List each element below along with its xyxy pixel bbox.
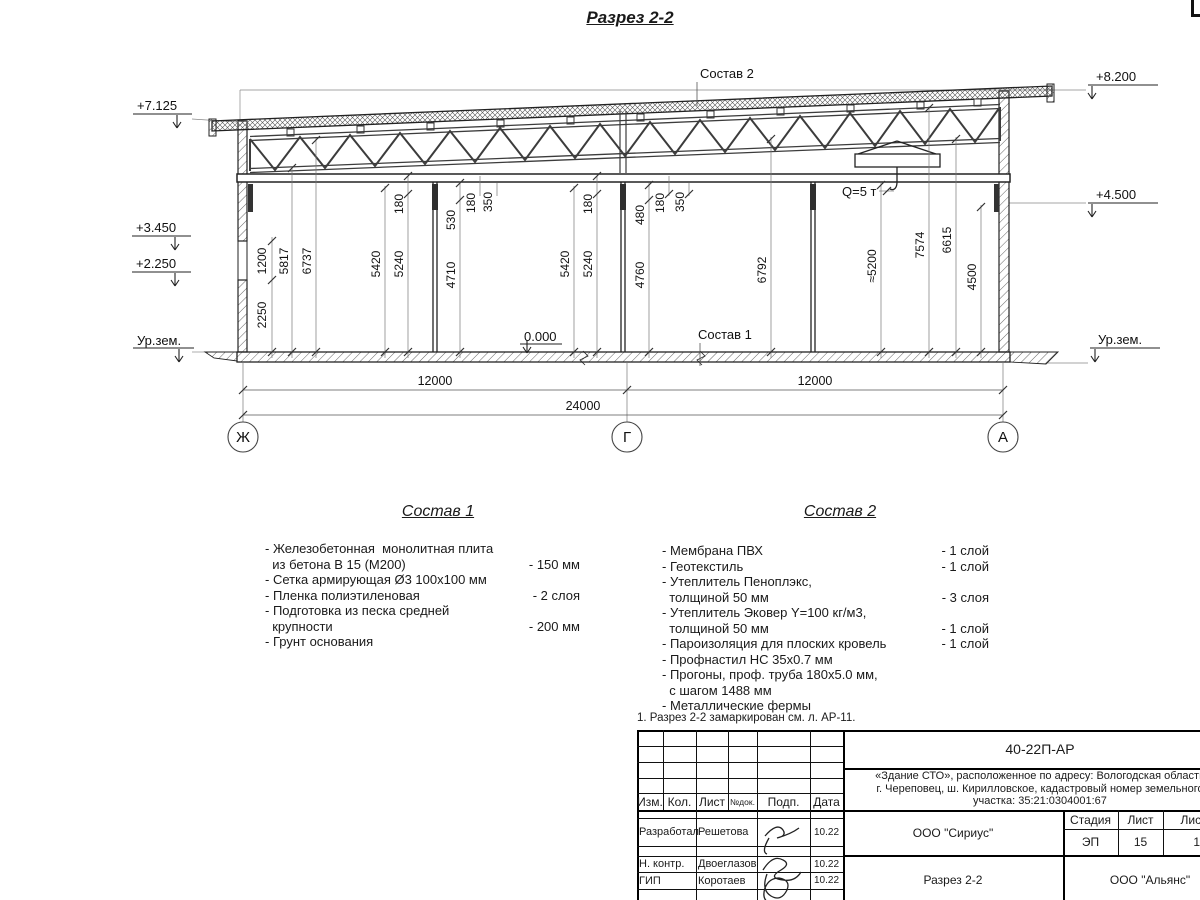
svg-text:4760: 4760: [633, 261, 647, 288]
svg-text:+8.200: +8.200: [1096, 69, 1136, 84]
svg-text:+7.125: +7.125: [137, 98, 177, 113]
svg-text:1200: 1200: [255, 247, 269, 274]
col-data: Дата: [810, 793, 843, 810]
col-kol: Кол.: [663, 793, 696, 810]
svg-text:Ур.зем.: Ур.зем.: [1098, 332, 1142, 347]
svg-text:180: 180: [581, 194, 595, 214]
svg-text:5240: 5240: [581, 250, 595, 277]
sheets-label: Листов: [1163, 810, 1200, 829]
svg-text:180: 180: [653, 193, 667, 213]
svg-text:6615: 6615: [940, 226, 954, 253]
col-ndok: №док.: [728, 793, 757, 810]
sostav2-title: Состав 2: [780, 503, 900, 521]
dimension-texts: 2250 1200 5817 6737 5420 5240 180 530 47…: [255, 192, 979, 329]
svg-text:350: 350: [481, 192, 495, 212]
svg-text:≈5200: ≈5200: [865, 249, 879, 283]
list-item: - Профнастил НС 35х0.7 мм: [662, 652, 989, 668]
signature-strokes: [755, 812, 813, 900]
list-item: - Грунт основания: [265, 634, 580, 650]
col-izm: Изм.: [637, 793, 663, 810]
svg-text:+2.250: +2.250: [136, 256, 176, 271]
reference-lines: [192, 90, 1088, 363]
project-description: «Здание СТО», расположенное по адресу: В…: [847, 768, 1200, 810]
sheet-note: 1. Разрез 2-2 замаркирован см. л. АР-11.: [637, 712, 855, 724]
signer-date: 10.22: [810, 872, 843, 889]
signer-name: Двоеглазов: [698, 856, 757, 872]
signer-date: 10.22: [810, 818, 843, 846]
svg-text:2250: 2250: [255, 301, 269, 328]
svg-text:4710: 4710: [444, 261, 458, 288]
col-podp: Подп.: [757, 793, 810, 810]
crane-beam: [237, 174, 1010, 182]
svg-text:6792: 6792: [755, 256, 769, 283]
walls-group: [238, 91, 1009, 352]
axis-bubbles: Ж Г А: [228, 422, 1018, 452]
svg-text:6737: 6737: [300, 247, 314, 274]
axis-letter: Ж: [236, 429, 250, 446]
sheets-value: 16: [1163, 829, 1200, 855]
zero-level-label: 0.000: [524, 329, 557, 344]
list-item: - Пленка полиэтиленовая - 2 слоя: [265, 588, 580, 604]
svg-text:350: 350: [673, 192, 687, 212]
svg-text:180: 180: [464, 193, 478, 213]
svg-text:180: 180: [392, 194, 406, 214]
axis-letter: А: [998, 429, 1008, 446]
signer-name: Коротаев: [698, 872, 757, 889]
svg-text:5420: 5420: [369, 250, 383, 277]
org-alyans: ООО "Альянс": [1063, 855, 1200, 900]
sheet-label: Лист: [1118, 810, 1163, 829]
svg-text:12000: 12000: [798, 374, 833, 388]
list-item: - Мембрана ПВХ - 1 слой: [662, 543, 989, 559]
axis-dimensions: 12000 12000 24000: [239, 362, 1007, 422]
svg-text:12000: 12000: [418, 374, 453, 388]
doc-number: 40-22П-АР: [843, 730, 1200, 768]
sostav2-callout: Состав 2: [700, 66, 754, 81]
signer-role: Н. контр.: [639, 856, 696, 872]
svg-text:24000: 24000: [566, 399, 601, 413]
org-sirius: ООО "Сириус": [843, 810, 1063, 855]
list-item: - Сетка армирующая Ø3 100х100 мм: [265, 572, 580, 588]
sostav1-callout: Состав 1: [698, 327, 752, 342]
crane-load-label: Q=5 т: [842, 184, 877, 199]
columns-group: [248, 182, 999, 352]
svg-text:530: 530: [444, 210, 458, 230]
title-block: Изм. Кол. Лист №док. Подп. Дата Разработ…: [637, 730, 1200, 900]
list-item: - Прогоны, проф. труба 180х5.0 мм, с шаг…: [662, 667, 989, 698]
col-list: Лист: [696, 793, 728, 810]
signer-role: ГИП: [639, 872, 696, 889]
axis-letter: Г: [623, 429, 631, 446]
list-item: - Подготовка из песка средней крупности …: [265, 603, 580, 634]
svg-text:5817: 5817: [277, 247, 291, 274]
sheet-value: 15: [1118, 829, 1163, 855]
svg-text:480: 480: [633, 205, 647, 225]
svg-text:+4.500: +4.500: [1096, 187, 1136, 202]
sostav2-list: - Мембрана ПВХ - 1 слой - Геотекстиль - …: [662, 543, 989, 714]
svg-text:Ур.зем.: Ур.зем.: [137, 333, 181, 348]
list-item: - Утеплитель Пеноплэкс, толщиной 50 мм -…: [662, 574, 989, 605]
sostav1-title: Состав 1: [378, 503, 498, 521]
drawing-sheet: Разрез 2-2: [0, 0, 1200, 900]
signer-name: Решетова: [698, 818, 757, 846]
list-item: - Утеплитель Эковер Y=100 кг/м3, толщино…: [662, 605, 989, 636]
list-item: - Пароизоляция для плоских кровель - 1 с…: [662, 636, 989, 652]
sostav1-list: - Железобетонная монолитная плита из бет…: [265, 541, 580, 650]
list-item: - Железобетонная монолитная плита из бет…: [265, 541, 580, 572]
svg-text:5420: 5420: [558, 250, 572, 277]
signer-date: 10.22: [810, 856, 843, 872]
section-drawing-svg: Q=5 т 2250: [0, 0, 1200, 470]
svg-text:4500: 4500: [965, 263, 979, 290]
stage-value: ЭП: [1063, 829, 1118, 855]
svg-text:5240: 5240: [392, 250, 406, 277]
svg-text:+3.450: +3.450: [136, 220, 176, 235]
signer-role: Разработал: [639, 818, 696, 846]
floor-group: [205, 351, 1058, 365]
stage-label: Стадия: [1063, 810, 1118, 829]
sheet-name: Разрез 2-2: [843, 855, 1063, 900]
list-item: - Геотекстиль - 1 слой: [662, 559, 989, 575]
svg-text:7574: 7574: [913, 231, 927, 258]
